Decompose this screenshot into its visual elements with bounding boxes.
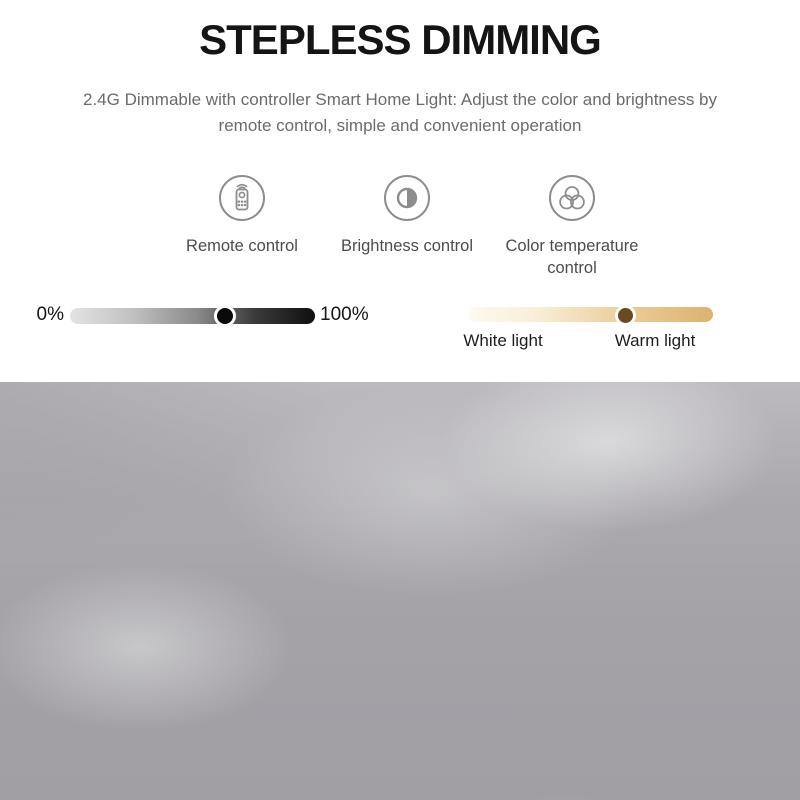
brightness-slider-track[interactable] <box>70 308 315 324</box>
feature-label: Remote control <box>158 235 326 257</box>
feature-label: Color temperature control <box>488 235 656 279</box>
feature-label: Brightness control <box>323 235 491 257</box>
feature-color-temperature-control: Color temperature control <box>488 174 656 279</box>
warm-light-label: Warm light <box>600 331 710 351</box>
feature-brightness-control: Brightness control <box>323 174 491 257</box>
color-temperature-control-icon <box>548 174 596 222</box>
brightness-max-label: 100% <box>320 304 369 326</box>
brightness-control-icon <box>383 174 431 222</box>
subtitle-line-2: remote control, simple and convenient op… <box>20 116 780 136</box>
color-temperature-slider-track[interactable] <box>468 307 713 322</box>
subtitle-line-1: 2.4G Dimmable with controller Smart Home… <box>20 90 780 110</box>
product-banner: STEPLESS DIMMING 2.4G Dimmable with cont… <box>0 0 800 800</box>
page-title: STEPLESS DIMMING <box>0 16 800 64</box>
brightness-min-label: 0% <box>30 304 64 326</box>
white-light-label: White light <box>448 331 558 351</box>
product-photo <box>0 382 800 800</box>
remote-control-icon <box>218 174 266 222</box>
brightness-slider-knob[interactable] <box>214 305 236 327</box>
color-temperature-slider-knob[interactable] <box>615 305 636 326</box>
feature-remote-control: Remote control <box>158 174 326 257</box>
